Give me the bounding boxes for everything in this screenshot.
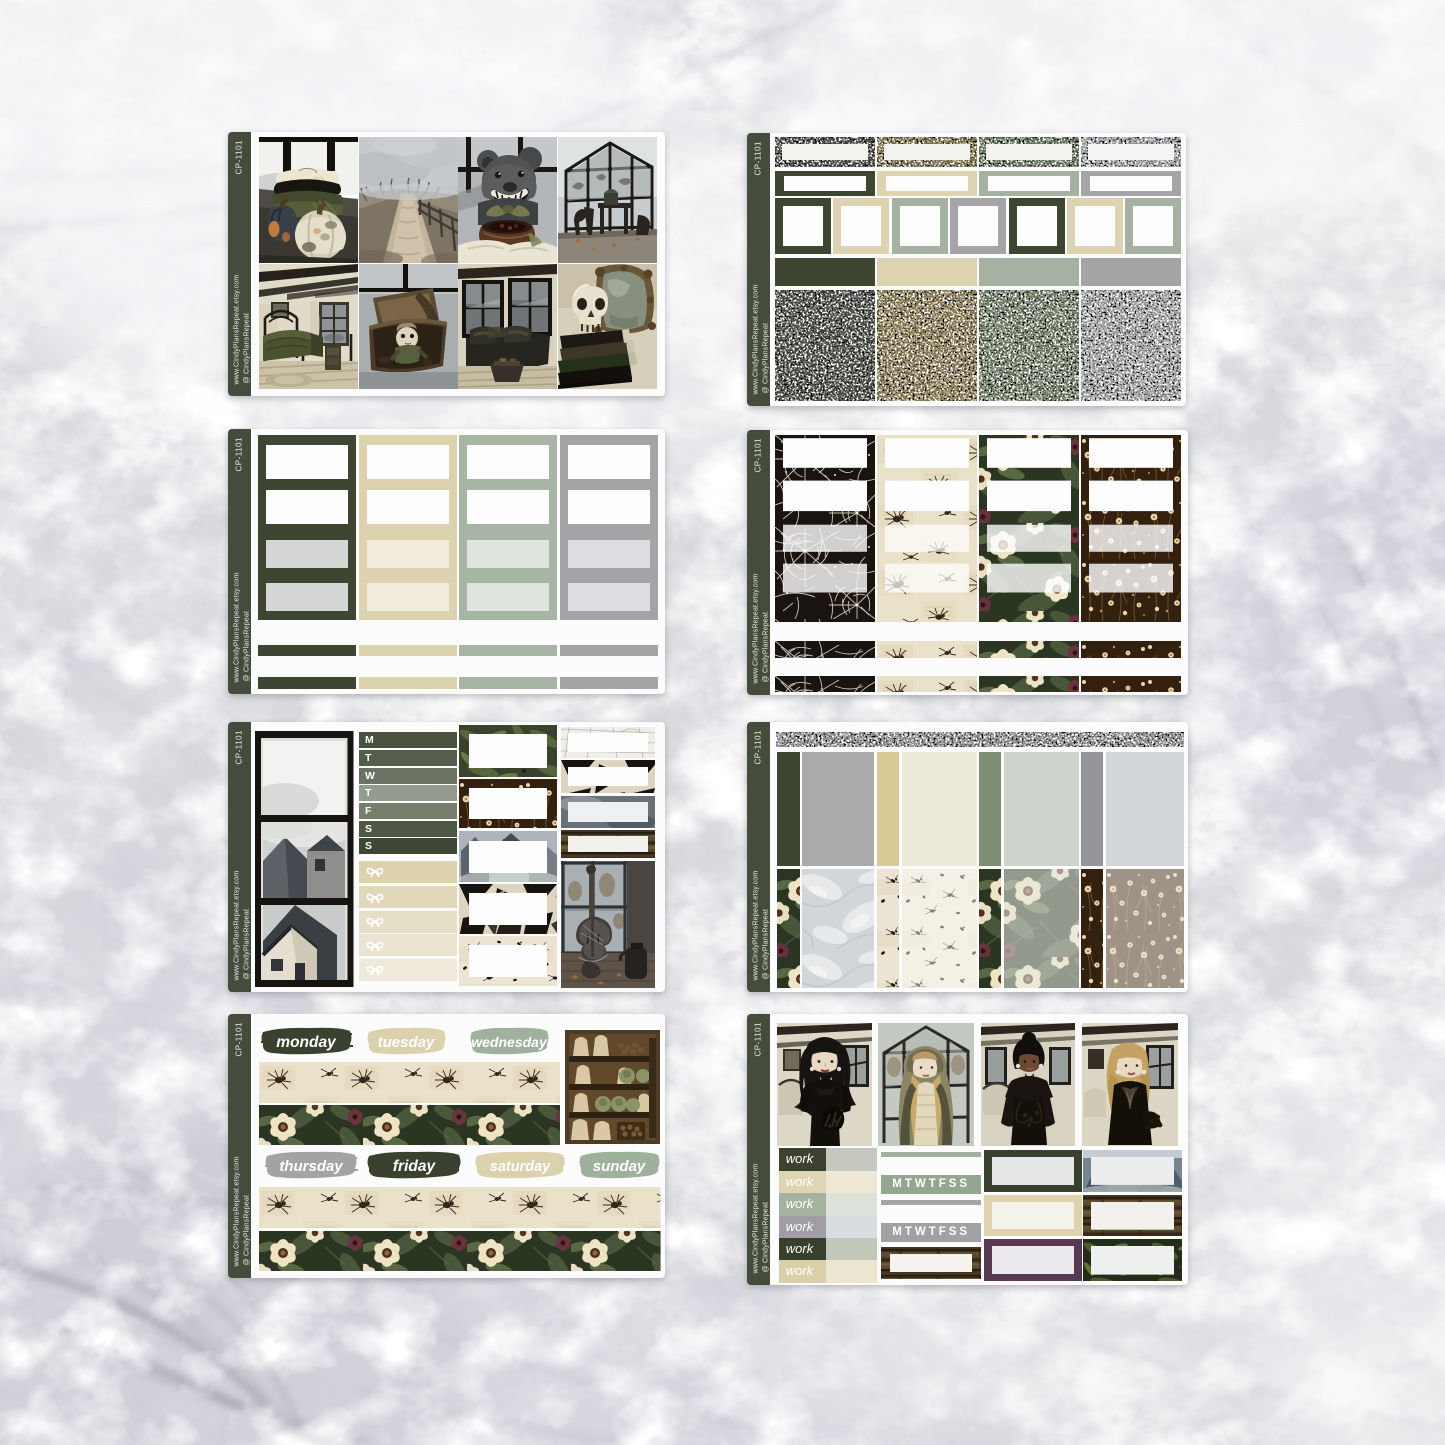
svg-text:wednesday: wednesday bbox=[471, 1034, 548, 1050]
svg-text:thursday: thursday bbox=[279, 1158, 343, 1175]
svg-text:sunday: sunday bbox=[592, 1158, 645, 1175]
svg-text:saturday: saturday bbox=[489, 1159, 550, 1175]
svg-text:monday: monday bbox=[276, 1034, 337, 1051]
svg-text:friday: friday bbox=[393, 1158, 437, 1175]
svg-text:tuesday: tuesday bbox=[378, 1034, 435, 1051]
